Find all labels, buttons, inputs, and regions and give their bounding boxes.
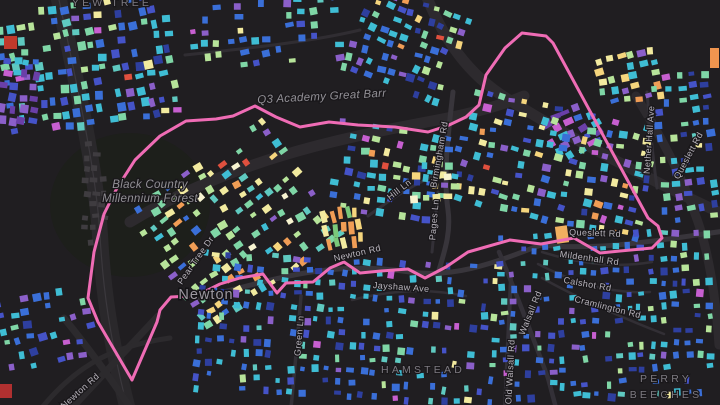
building[interactable] — [483, 278, 487, 283]
building[interactable] — [661, 182, 669, 188]
building[interactable] — [198, 309, 205, 315]
building[interactable] — [93, 11, 101, 18]
building[interactable] — [238, 28, 244, 34]
building[interactable] — [126, 88, 135, 97]
building[interactable] — [587, 127, 596, 134]
building[interactable] — [363, 284, 370, 291]
building[interactable] — [357, 391, 363, 398]
building[interactable] — [77, 41, 87, 51]
building[interactable] — [639, 367, 645, 373]
building[interactable] — [53, 113, 61, 119]
building[interactable] — [558, 318, 564, 324]
building[interactable] — [233, 302, 240, 309]
building[interactable] — [386, 321, 392, 327]
building[interactable] — [521, 247, 526, 252]
building[interactable] — [118, 22, 125, 30]
building[interactable] — [382, 344, 389, 352]
building[interactable] — [90, 177, 98, 182]
building[interactable] — [548, 333, 555, 339]
building[interactable] — [423, 311, 429, 316]
building[interactable] — [15, 57, 23, 64]
building[interactable] — [499, 320, 505, 325]
building[interactable] — [118, 113, 127, 121]
building[interactable] — [682, 243, 688, 251]
building[interactable] — [562, 133, 571, 142]
building[interactable] — [9, 82, 18, 90]
building[interactable] — [205, 359, 212, 366]
building[interactable] — [359, 343, 365, 350]
building[interactable] — [395, 358, 401, 364]
building[interactable] — [228, 39, 235, 45]
building[interactable] — [643, 175, 649, 183]
building[interactable] — [423, 195, 429, 201]
building[interactable] — [159, 96, 165, 103]
building[interactable] — [287, 366, 295, 374]
building[interactable] — [280, 292, 286, 298]
building[interactable] — [265, 365, 272, 370]
building[interactable] — [374, 346, 381, 352]
building[interactable] — [229, 339, 235, 344]
building[interactable] — [442, 348, 446, 354]
building[interactable] — [77, 122, 85, 131]
building[interactable] — [26, 333, 34, 339]
building[interactable] — [257, 266, 264, 273]
building[interactable] — [649, 354, 655, 360]
building[interactable] — [313, 341, 321, 348]
building[interactable] — [521, 208, 529, 213]
building[interactable] — [665, 86, 671, 91]
building[interactable] — [190, 29, 196, 34]
building[interactable] — [536, 357, 544, 363]
building[interactable] — [651, 86, 657, 92]
building[interactable] — [352, 208, 357, 218]
building[interactable] — [660, 256, 667, 262]
building[interactable] — [275, 46, 281, 53]
building[interactable] — [38, 7, 44, 15]
building[interactable] — [581, 209, 587, 216]
building[interactable] — [257, 279, 263, 286]
building-highlight[interactable] — [710, 48, 719, 68]
building[interactable] — [647, 47, 653, 55]
building[interactable] — [445, 163, 453, 170]
building[interactable] — [0, 38, 5, 45]
building[interactable] — [511, 286, 517, 293]
building[interactable] — [626, 279, 634, 285]
building[interactable] — [433, 322, 441, 329]
building[interactable] — [377, 197, 385, 203]
building[interactable] — [165, 31, 174, 37]
building[interactable] — [43, 292, 49, 300]
building[interactable] — [628, 71, 637, 80]
building[interactable] — [500, 204, 509, 212]
building[interactable] — [234, 263, 242, 271]
map-canvas[interactable]: YEW TREEQ3 Academy Great BarrBlack Count… — [0, 0, 720, 405]
building[interactable] — [605, 356, 612, 362]
building[interactable] — [243, 325, 249, 332]
building[interactable] — [87, 41, 93, 48]
building[interactable] — [78, 352, 87, 358]
building[interactable] — [327, 331, 335, 339]
building[interactable] — [143, 113, 150, 119]
building[interactable] — [707, 363, 714, 368]
building[interactable] — [437, 84, 444, 91]
building[interactable] — [71, 16, 79, 22]
building[interactable] — [621, 73, 630, 82]
building[interactable] — [607, 393, 616, 402]
building[interactable] — [215, 51, 221, 58]
building[interactable] — [311, 33, 317, 39]
building[interactable] — [316, 292, 323, 299]
building[interactable] — [216, 359, 223, 365]
building[interactable] — [281, 268, 288, 274]
building[interactable] — [675, 193, 683, 201]
building[interactable] — [681, 122, 689, 127]
building[interactable] — [212, 252, 220, 257]
building[interactable] — [600, 163, 608, 172]
building[interactable] — [671, 256, 677, 262]
building[interactable] — [555, 106, 563, 111]
building[interactable] — [202, 30, 209, 36]
building[interactable] — [648, 306, 654, 311]
building[interactable] — [635, 96, 643, 102]
building[interactable] — [639, 342, 643, 350]
building[interactable] — [412, 172, 421, 179]
building[interactable] — [710, 212, 718, 218]
building[interactable] — [521, 261, 526, 266]
building[interactable] — [88, 240, 94, 246]
building[interactable] — [386, 332, 394, 339]
building[interactable] — [341, 222, 347, 232]
building[interactable] — [330, 7, 339, 13]
building[interactable] — [82, 215, 88, 221]
building[interactable] — [410, 320, 418, 327]
building[interactable] — [559, 368, 566, 373]
building[interactable] — [23, 320, 33, 329]
building[interactable] — [55, 288, 62, 296]
building[interactable] — [4, 340, 10, 345]
building[interactable] — [62, 111, 70, 120]
building[interactable] — [444, 173, 452, 180]
building[interactable] — [675, 217, 681, 223]
building[interactable] — [703, 230, 710, 238]
building[interactable] — [311, 364, 318, 372]
building[interactable] — [268, 291, 273, 296]
building[interactable] — [649, 255, 654, 261]
building[interactable] — [635, 162, 642, 170]
building[interactable] — [591, 212, 599, 220]
building[interactable] — [580, 268, 587, 275]
building[interactable] — [669, 290, 677, 298]
building[interactable] — [457, 289, 464, 297]
building[interactable] — [682, 289, 689, 294]
building[interactable] — [231, 350, 236, 357]
building[interactable] — [571, 318, 576, 323]
building[interactable] — [241, 336, 247, 342]
building[interactable] — [266, 302, 275, 311]
building[interactable] — [10, 106, 16, 114]
building[interactable] — [469, 324, 477, 332]
building[interactable] — [316, 303, 324, 312]
building[interactable] — [89, 201, 96, 206]
building[interactable] — [244, 349, 249, 357]
building[interactable] — [111, 49, 120, 59]
building[interactable] — [117, 102, 127, 112]
building[interactable] — [98, 54, 107, 61]
building[interactable] — [240, 62, 248, 68]
building[interactable] — [346, 367, 354, 372]
building[interactable] — [263, 387, 268, 395]
building[interactable] — [307, 267, 313, 273]
building[interactable] — [48, 6, 57, 15]
building[interactable] — [82, 308, 91, 315]
building[interactable] — [81, 93, 89, 101]
building[interactable] — [165, 55, 173, 64]
building[interactable] — [335, 354, 339, 362]
building[interactable] — [594, 391, 599, 396]
building[interactable] — [481, 312, 489, 320]
building[interactable] — [581, 382, 588, 387]
building[interactable] — [329, 191, 337, 198]
building[interactable] — [479, 128, 485, 135]
building[interactable] — [82, 177, 89, 183]
building[interactable] — [432, 312, 439, 320]
building[interactable] — [451, 183, 460, 189]
building[interactable] — [688, 81, 697, 88]
building[interactable] — [661, 317, 667, 324]
building[interactable] — [422, 174, 429, 182]
building[interactable] — [570, 381, 576, 386]
building[interactable] — [329, 279, 335, 285]
building[interactable] — [297, 9, 305, 15]
building[interactable] — [695, 313, 701, 318]
building[interactable] — [334, 390, 341, 394]
building[interactable] — [8, 364, 14, 371]
building[interactable] — [350, 342, 357, 350]
building[interactable] — [135, 62, 145, 72]
building[interactable] — [558, 145, 567, 152]
building[interactable] — [141, 97, 151, 107]
building[interactable] — [253, 374, 259, 380]
building[interactable] — [425, 262, 431, 268]
building[interactable] — [371, 393, 377, 400]
building[interactable] — [454, 323, 459, 330]
building[interactable] — [464, 397, 472, 404]
building[interactable] — [671, 230, 679, 237]
building[interactable] — [95, 39, 104, 48]
building[interactable] — [29, 96, 38, 103]
building[interactable] — [445, 147, 453, 153]
building[interactable] — [287, 377, 294, 384]
building[interactable] — [247, 264, 253, 272]
building[interactable] — [275, 378, 279, 383]
building[interactable] — [161, 108, 169, 113]
building[interactable] — [599, 78, 608, 85]
building[interactable] — [61, 85, 70, 94]
building[interactable] — [535, 331, 540, 337]
building[interactable] — [83, 13, 91, 20]
building[interactable] — [660, 157, 666, 163]
building[interactable] — [225, 252, 231, 258]
building[interactable] — [681, 264, 689, 271]
building[interactable] — [547, 344, 554, 352]
building[interactable] — [510, 323, 517, 330]
building[interactable] — [508, 98, 515, 103]
building[interactable] — [369, 369, 375, 375]
building[interactable] — [558, 330, 565, 338]
building[interactable] — [67, 57, 76, 64]
building[interactable] — [670, 134, 678, 141]
building[interactable] — [317, 0, 323, 3]
building[interactable] — [335, 342, 344, 350]
building[interactable] — [337, 317, 343, 324]
building[interactable] — [587, 176, 596, 183]
building[interactable] — [490, 313, 497, 321]
building[interactable] — [86, 119, 94, 126]
building[interactable] — [338, 283, 345, 290]
building[interactable] — [351, 281, 356, 287]
building[interactable] — [703, 118, 709, 125]
building[interactable] — [95, 91, 103, 100]
building[interactable] — [397, 347, 405, 355]
building[interactable] — [20, 95, 28, 101]
building[interactable] — [510, 299, 517, 305]
building[interactable] — [379, 174, 386, 181]
building[interactable] — [624, 266, 630, 273]
building[interactable] — [447, 277, 452, 284]
building[interactable] — [403, 382, 408, 390]
building[interactable] — [262, 36, 270, 42]
building[interactable] — [253, 59, 260, 66]
building[interactable] — [497, 272, 505, 277]
building[interactable] — [700, 82, 709, 88]
building[interactable] — [322, 378, 328, 383]
building[interactable] — [0, 82, 8, 89]
building[interactable] — [212, 4, 221, 10]
building[interactable] — [41, 100, 47, 108]
building[interactable] — [154, 31, 160, 38]
building[interactable] — [424, 299, 431, 304]
building[interactable] — [3, 58, 11, 65]
building[interactable] — [361, 367, 369, 375]
building[interactable] — [393, 175, 401, 180]
building[interactable] — [627, 62, 635, 70]
building[interactable] — [454, 398, 460, 403]
building[interactable] — [516, 395, 521, 402]
building[interactable] — [673, 281, 678, 287]
building[interactable] — [410, 195, 418, 203]
building[interactable] — [213, 40, 219, 47]
building[interactable] — [337, 307, 344, 311]
building[interactable] — [361, 148, 370, 155]
building[interactable] — [256, 325, 261, 330]
building[interactable] — [198, 322, 204, 330]
building[interactable] — [251, 37, 259, 45]
building[interactable] — [84, 191, 92, 198]
building[interactable] — [339, 329, 346, 335]
building[interactable] — [245, 289, 250, 293]
building[interactable] — [94, 27, 101, 33]
building[interactable] — [361, 209, 368, 214]
building[interactable] — [613, 243, 620, 249]
building[interactable] — [550, 370, 558, 375]
building[interactable] — [33, 59, 39, 64]
building[interactable] — [478, 188, 486, 196]
building[interactable] — [515, 173, 522, 179]
building[interactable] — [233, 289, 240, 297]
building[interactable] — [627, 342, 633, 347]
building[interactable] — [711, 200, 718, 208]
building[interactable] — [377, 258, 383, 266]
building[interactable] — [100, 176, 107, 182]
building[interactable] — [369, 150, 376, 157]
building[interactable] — [701, 71, 709, 78]
building[interactable] — [561, 191, 568, 197]
building[interactable] — [91, 165, 97, 171]
building[interactable] — [693, 279, 700, 286]
building[interactable] — [283, 0, 291, 7]
building[interactable] — [93, 77, 102, 86]
building[interactable] — [74, 95, 82, 104]
building[interactable] — [347, 393, 352, 400]
building[interactable] — [370, 160, 378, 168]
building[interactable] — [638, 291, 644, 296]
building[interactable] — [648, 269, 654, 275]
building[interactable] — [360, 355, 365, 360]
building[interactable] — [0, 115, 6, 124]
building[interactable] — [476, 388, 481, 395]
building[interactable] — [524, 285, 531, 292]
building[interactable] — [117, 36, 125, 44]
building[interactable] — [286, 12, 291, 19]
building[interactable] — [323, 366, 328, 371]
building[interactable] — [705, 143, 712, 151]
building[interactable] — [361, 332, 365, 338]
building[interactable] — [492, 338, 500, 343]
building[interactable] — [436, 299, 441, 304]
building[interactable] — [11, 312, 20, 318]
building[interactable] — [554, 272, 562, 279]
building[interactable] — [354, 193, 361, 200]
building[interactable] — [363, 197, 370, 204]
building[interactable] — [147, 70, 156, 76]
building[interactable] — [572, 344, 580, 349]
building[interactable] — [258, 0, 264, 7]
building[interactable] — [304, 257, 311, 263]
building[interactable] — [654, 122, 662, 130]
building[interactable] — [16, 116, 26, 125]
building[interactable] — [293, 0, 301, 2]
building[interactable] — [22, 59, 29, 65]
building[interactable] — [348, 380, 355, 386]
building[interactable] — [70, 84, 78, 93]
building[interactable] — [670, 240, 677, 247]
building[interactable] — [369, 358, 375, 363]
building[interactable] — [657, 91, 665, 99]
building[interactable] — [153, 55, 163, 65]
building[interactable] — [545, 273, 550, 281]
building[interactable] — [671, 158, 678, 164]
building[interactable] — [496, 261, 504, 267]
building[interactable] — [50, 97, 56, 106]
building[interactable] — [335, 42, 344, 47]
building[interactable] — [428, 398, 433, 405]
building[interactable] — [398, 212, 406, 220]
building[interactable] — [309, 7, 318, 16]
building[interactable] — [673, 351, 679, 358]
building[interactable] — [684, 179, 692, 186]
building[interactable] — [591, 270, 597, 276]
building[interactable] — [509, 272, 514, 278]
